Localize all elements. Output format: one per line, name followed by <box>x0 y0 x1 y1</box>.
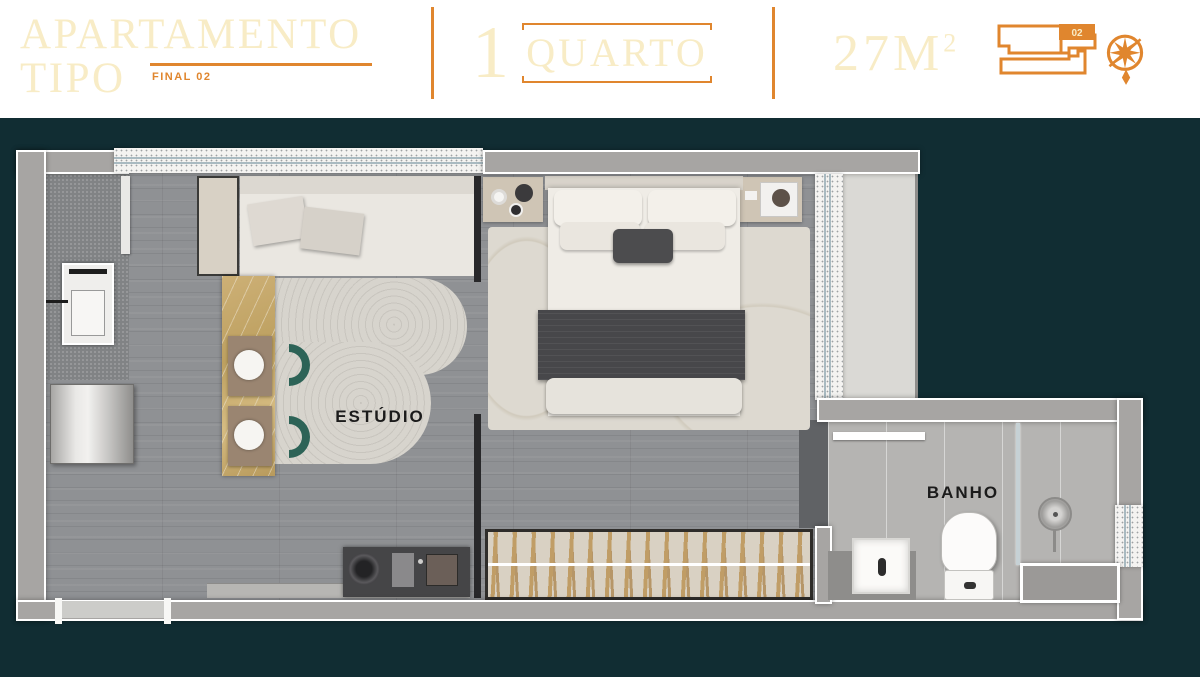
floor-plan-page: ESTÚDIO BANHO APARTAMENTO TIPO FINAL 02 … <box>0 0 1200 677</box>
wall-bottom <box>16 600 1143 621</box>
kitchen-appliance-block <box>343 547 470 597</box>
header-divider-1 <box>431 7 434 99</box>
area-value: 27M <box>833 25 943 82</box>
entry-threshold <box>62 601 164 618</box>
sofa-backrest <box>240 176 476 196</box>
sofa-pillow-2 <box>300 207 365 256</box>
wardrobe <box>485 529 813 600</box>
washer-appliance <box>50 384 134 464</box>
room-label-banho: BANHO <box>918 483 1008 503</box>
bowl-item <box>772 189 790 207</box>
shower-head-center <box>1053 512 1058 517</box>
laundry-basin <box>71 290 105 336</box>
room-label-estudio: ESTÚDIO <box>330 407 430 427</box>
bed-accent-pillow <box>613 229 673 263</box>
wall-left <box>16 150 46 620</box>
cup-item <box>491 189 507 205</box>
cooktop <box>392 553 414 587</box>
dining-chair-2 <box>268 406 310 468</box>
quarto-rule-bottom <box>522 81 712 83</box>
toilet-bowl <box>941 512 997 574</box>
wall-top-right <box>483 150 920 174</box>
toilet-flush-button <box>964 582 976 589</box>
area-superscript: 2 <box>943 29 956 58</box>
window-right <box>815 174 843 400</box>
tall-cabinet <box>197 176 239 276</box>
bathroom-window <box>1115 505 1143 567</box>
bed-pillow-1 <box>554 190 642 226</box>
divider-wall-upper <box>474 176 481 282</box>
keyplan-unit-label: 02 <box>1071 28 1083 39</box>
area-block: 27M2 <box>833 28 956 80</box>
bathroom-door-leaf <box>833 432 925 440</box>
dining-chair-1 <box>268 334 310 396</box>
divider-wall-lower <box>474 414 481 598</box>
bathroom-sink <box>852 538 910 594</box>
plate-2 <box>234 420 264 450</box>
window-jamb-left <box>121 176 130 254</box>
entry-jamb-left <box>55 598 62 624</box>
toilet-tank <box>944 570 994 600</box>
bedrooms-count: 1 <box>472 16 509 90</box>
bathroom-passage-floor <box>799 420 830 528</box>
wardrobe-rail <box>488 563 810 566</box>
quarto-rule-top <box>522 23 712 25</box>
header-divider-2 <box>772 7 775 99</box>
nightstand-left <box>483 177 543 222</box>
plate-1 <box>234 350 264 380</box>
bedrooms-label: QUARTO <box>522 31 712 75</box>
laundry-sink-ledge <box>69 269 107 274</box>
final-label: FINAL 02 <box>152 71 211 83</box>
bed-throw-blanket <box>538 310 745 380</box>
balcony-floor <box>842 174 918 400</box>
entry-jamb-right <box>164 598 171 624</box>
final-underline <box>150 63 372 66</box>
shower-glass-partition <box>1016 423 1020 565</box>
title-line1: APARTAMENTO <box>20 13 362 56</box>
stove-panel <box>426 554 458 586</box>
bed-pillow-2 <box>648 190 736 226</box>
sink-faucet <box>878 558 886 576</box>
header-bar: APARTAMENTO TIPO FINAL 02 1 QUARTO 27M2 … <box>0 0 1200 118</box>
shaft-box <box>1020 563 1120 603</box>
bed-footboard-bench <box>546 378 742 414</box>
vase-item-1 <box>515 184 533 202</box>
bathroom-wall-top <box>817 398 1143 422</box>
keyplan-icon: 02 <box>985 18 1117 80</box>
round-sink <box>348 553 380 585</box>
nightstand-right <box>740 177 802 222</box>
remote-item <box>745 191 757 200</box>
title-line2: TIPO <box>20 57 126 100</box>
sofa-pillow-1 <box>247 196 309 246</box>
window-top <box>114 148 483 173</box>
laundry-sink <box>62 263 114 345</box>
compass-icon <box>1100 30 1150 88</box>
shower-head <box>1038 497 1072 531</box>
cooktop-knob <box>418 559 423 564</box>
vase-item-2 <box>509 203 523 217</box>
